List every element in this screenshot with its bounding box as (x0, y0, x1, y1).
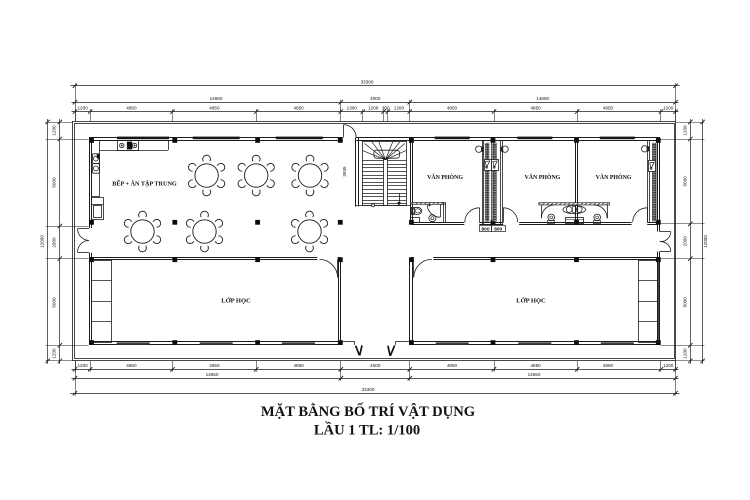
svg-text:1200: 1200 (51, 348, 56, 359)
svg-text:2000: 2000 (51, 237, 56, 248)
svg-text:BẾP + ĂN TẬP TRUNG: BẾP + ĂN TẬP TRUNG (112, 180, 177, 188)
svg-text:VĂN PHÒNG: VĂN PHÒNG (596, 173, 632, 181)
svg-text:LỚP HỌC: LỚP HỌC (516, 297, 546, 305)
svg-text:4850: 4850 (293, 363, 304, 368)
svg-text:33300: 33300 (361, 80, 374, 85)
svg-text:LỚP HỌC: LỚP HỌC (221, 297, 251, 305)
svg-text:1200: 1200 (683, 348, 688, 359)
svg-text:4850: 4850 (447, 363, 458, 368)
svg-text:12000: 12000 (703, 235, 708, 248)
svg-text:12000: 12000 (40, 235, 45, 248)
svg-text:5000: 5000 (683, 176, 688, 187)
svg-text:VĂN PHÒNG: VĂN PHÒNG (427, 173, 463, 181)
svg-text:4850: 4850 (530, 363, 541, 368)
svg-text:5000: 5000 (51, 177, 56, 188)
svg-text:1200: 1200 (663, 363, 674, 368)
svg-text:800: 800 (494, 226, 502, 232)
svg-text:14650: 14650 (528, 372, 541, 377)
svg-text:14650: 14650 (536, 96, 549, 101)
svg-text:800: 800 (481, 226, 489, 232)
svg-text:4850: 4850 (209, 363, 220, 368)
svg-text:14650: 14650 (210, 96, 223, 101)
svg-text:4850: 4850 (126, 105, 137, 110)
svg-text:4850: 4850 (293, 105, 304, 110)
svg-text:LẦU 1 TL: 1/100: LẦU 1 TL: 1/100 (314, 422, 420, 439)
svg-text:1200: 1200 (77, 105, 88, 110)
svg-text:1200: 1200 (368, 105, 379, 110)
svg-text:5000: 5000 (683, 297, 688, 308)
svg-text:1200: 1200 (683, 125, 688, 136)
svg-text:1200: 1200 (51, 125, 56, 136)
svg-text:1200: 1200 (663, 105, 674, 110)
svg-text:4850: 4850 (603, 105, 614, 110)
svg-text:4850: 4850 (530, 105, 541, 110)
svg-text:MẶT BẰNG BỐ TRÍ VẬT DỤNG: MẶT BẰNG BỐ TRÍ VẬT DỤNG (261, 402, 475, 420)
svg-text:5000: 5000 (51, 297, 56, 308)
svg-text:4000: 4000 (370, 363, 381, 368)
svg-text:4850: 4850 (126, 363, 137, 368)
svg-text:4850: 4850 (447, 105, 458, 110)
svg-text:14650: 14650 (206, 372, 219, 377)
svg-text:300: 300 (382, 105, 390, 110)
svg-text:1200: 1200 (77, 363, 88, 368)
svg-text:4850: 4850 (209, 105, 220, 110)
svg-text:4850: 4850 (603, 363, 614, 368)
svg-text:1200: 1200 (394, 105, 405, 110)
svg-text:1300: 1300 (347, 105, 358, 110)
svg-text:4000: 4000 (370, 96, 381, 101)
svg-text:33300: 33300 (362, 387, 375, 392)
svg-text:2000: 2000 (683, 236, 688, 247)
svg-text:3935: 3935 (342, 166, 347, 177)
svg-text:VĂN PHÒNG: VĂN PHÒNG (524, 173, 560, 181)
